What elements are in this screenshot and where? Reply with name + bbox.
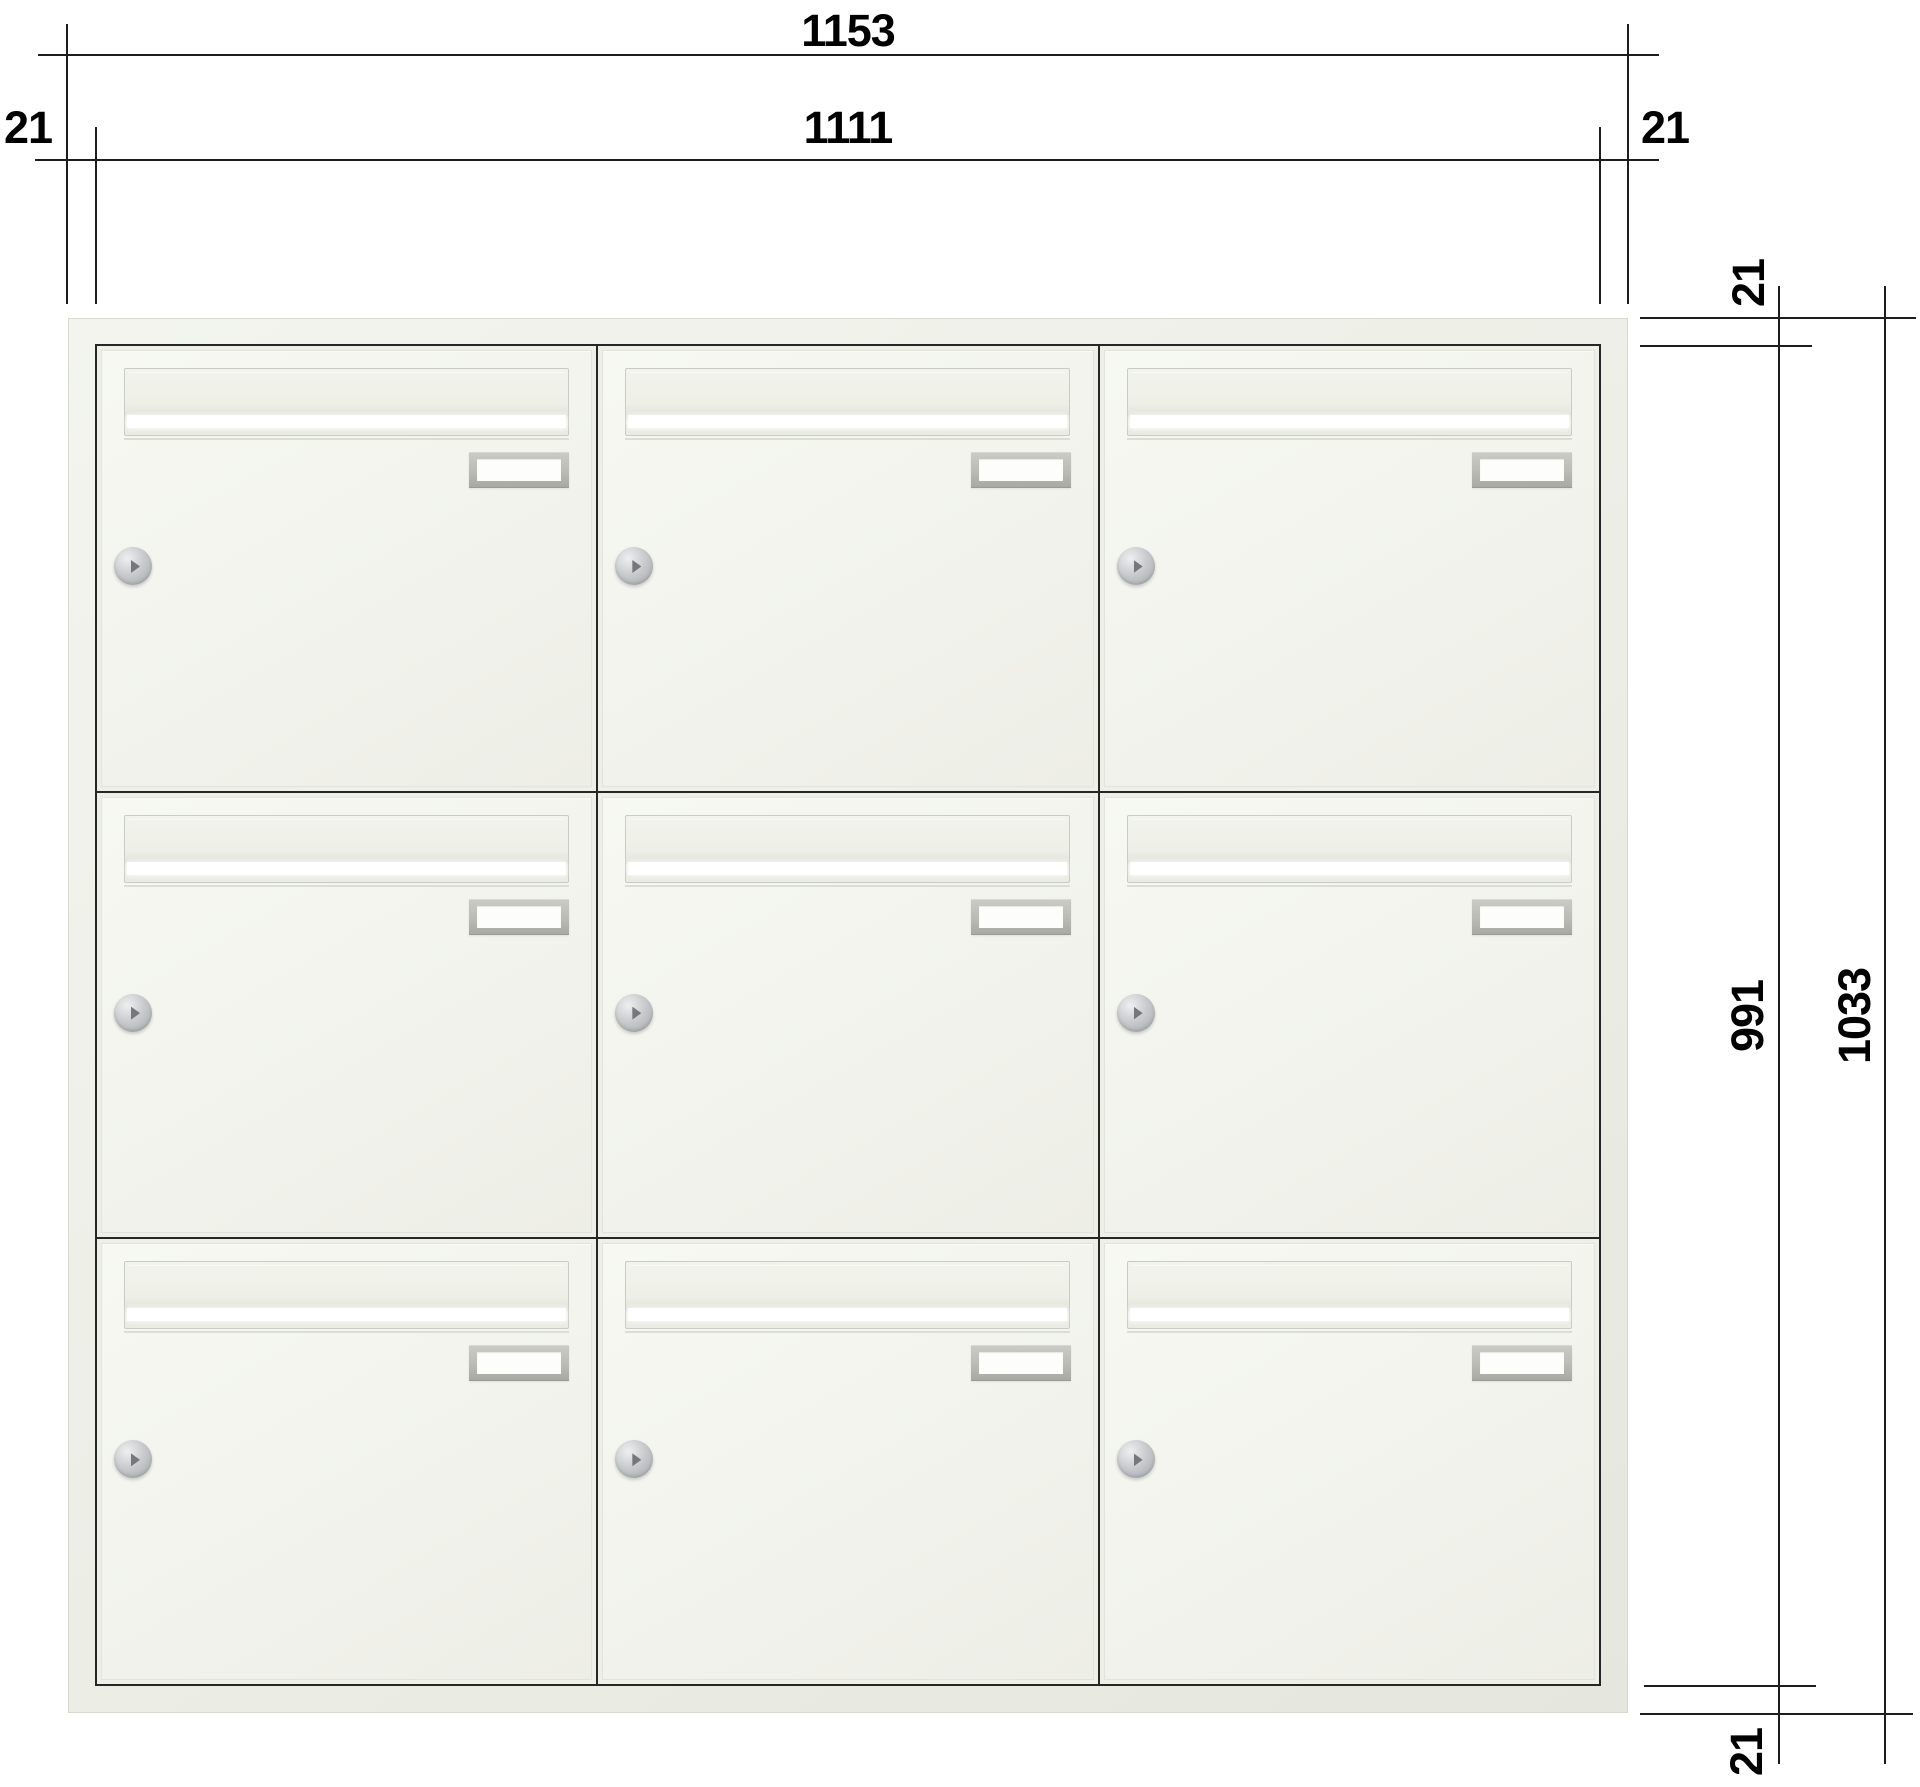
flap-shadow-line — [124, 885, 569, 887]
name-plate — [971, 452, 1071, 488]
keyhole-icon — [131, 1007, 140, 1020]
mailbox-door — [602, 797, 1093, 1234]
lock-cylinder — [114, 994, 152, 1032]
extension-line-inner-bottom — [1644, 1685, 1816, 1687]
mailbox-door — [1104, 350, 1595, 787]
letter-flap — [124, 368, 569, 436]
letter-slot — [628, 415, 1067, 428]
mailbox-compartment — [598, 793, 1097, 1238]
flap-shadow-line — [124, 438, 569, 440]
extension-line-outer-right — [1627, 24, 1629, 304]
mailbox-door — [602, 1243, 1093, 1680]
keyhole-icon — [632, 560, 641, 573]
keyhole-icon — [131, 1453, 140, 1466]
name-plate-window — [1480, 459, 1564, 481]
mailbox-compartment — [1100, 1239, 1599, 1684]
keyhole-icon — [1134, 1007, 1143, 1020]
flap-shadow-line — [124, 1331, 569, 1333]
lock-cylinder — [615, 1440, 653, 1478]
name-plate — [469, 899, 569, 935]
dim-line-inner-width — [35, 159, 1659, 161]
name-plate-window — [477, 459, 561, 481]
mailbox-compartment — [1100, 346, 1599, 791]
letter-slot — [628, 1308, 1067, 1321]
dim-label-inner-width: 1111 — [804, 102, 893, 154]
extension-line-outer-bottom — [1640, 1713, 1913, 1715]
letter-flap — [1127, 368, 1572, 436]
letter-flap — [124, 1261, 569, 1329]
dim-label-overall-width: 1153 — [801, 5, 895, 57]
lock-cylinder — [1117, 547, 1155, 585]
letter-flap — [625, 368, 1070, 436]
name-plate — [1472, 899, 1572, 935]
mailbox-compartment — [97, 1239, 596, 1684]
mailbox-compartment — [1100, 793, 1599, 1238]
mailbox-door — [1104, 1243, 1595, 1680]
lock-cylinder — [615, 994, 653, 1032]
name-plate — [469, 1345, 569, 1381]
name-plate-window — [477, 906, 561, 928]
dim-label-inner-height: 991 — [1722, 980, 1774, 1052]
compartment-grid — [95, 344, 1601, 1686]
letter-slot — [1130, 1308, 1569, 1321]
mailbox-door — [101, 350, 592, 787]
name-plate — [971, 899, 1071, 935]
letter-slot — [628, 862, 1067, 875]
letter-slot — [127, 415, 566, 428]
flap-shadow-line — [625, 885, 1070, 887]
mailbox-door — [1104, 797, 1595, 1234]
flap-shadow-line — [625, 1331, 1070, 1333]
letter-flap — [124, 815, 569, 883]
keyhole-icon — [1134, 1453, 1143, 1466]
dim-label-margin-bottom: 21 — [1721, 1728, 1773, 1776]
name-plate-window — [979, 1352, 1063, 1374]
keyhole-icon — [131, 560, 140, 573]
keyhole-icon — [632, 1453, 641, 1466]
dim-label-margin-left: 21 — [4, 102, 52, 154]
dim-label-margin-right: 21 — [1641, 102, 1689, 154]
flap-shadow-line — [1127, 438, 1572, 440]
name-plate — [469, 452, 569, 488]
name-plate-window — [1480, 1352, 1564, 1374]
mailbox-cabinet — [68, 318, 1628, 1713]
name-plate — [1472, 452, 1572, 488]
letter-slot — [127, 1308, 566, 1321]
flap-shadow-line — [1127, 885, 1572, 887]
letter-flap — [625, 815, 1070, 883]
dim-label-overall-height: 1033 — [1829, 968, 1881, 1064]
letter-flap — [1127, 815, 1572, 883]
name-plate-window — [1480, 906, 1564, 928]
letter-flap — [625, 1261, 1070, 1329]
keyhole-icon — [632, 1007, 641, 1020]
name-plate — [971, 1345, 1071, 1381]
letter-flap — [1127, 1261, 1572, 1329]
letter-slot — [127, 862, 566, 875]
lock-cylinder — [114, 547, 152, 585]
extension-line-inner-right — [1599, 127, 1601, 304]
dim-label-margin-top: 21 — [1723, 259, 1775, 307]
name-plate — [1472, 1345, 1572, 1381]
name-plate-window — [477, 1352, 561, 1374]
mailbox-door — [101, 1243, 592, 1680]
flap-shadow-line — [1127, 1331, 1572, 1333]
mailbox-door — [101, 797, 592, 1234]
letter-slot — [1130, 415, 1569, 428]
dim-line-inner-height — [1778, 286, 1780, 1764]
name-plate-window — [979, 906, 1063, 928]
mailbox-compartment — [598, 1239, 1097, 1684]
technical-drawing: 1153 1111 21 21 21 991 1033 21 — [0, 0, 1920, 1787]
lock-cylinder — [1117, 994, 1155, 1032]
extension-line-inner-top — [1640, 345, 1812, 347]
extension-line-outer-left — [66, 24, 68, 304]
name-plate-window — [979, 459, 1063, 481]
lock-cylinder — [114, 1440, 152, 1478]
lock-cylinder — [615, 547, 653, 585]
letter-slot — [1130, 862, 1569, 875]
mailbox-compartment — [97, 793, 596, 1238]
mailbox-compartment — [598, 346, 1097, 791]
lock-cylinder — [1117, 1440, 1155, 1478]
dim-line-overall-height — [1884, 286, 1886, 1764]
mailbox-door — [602, 350, 1093, 787]
mailbox-compartment — [97, 346, 596, 791]
flap-shadow-line — [625, 438, 1070, 440]
keyhole-icon — [1134, 560, 1143, 573]
extension-line-inner-left — [95, 127, 97, 304]
